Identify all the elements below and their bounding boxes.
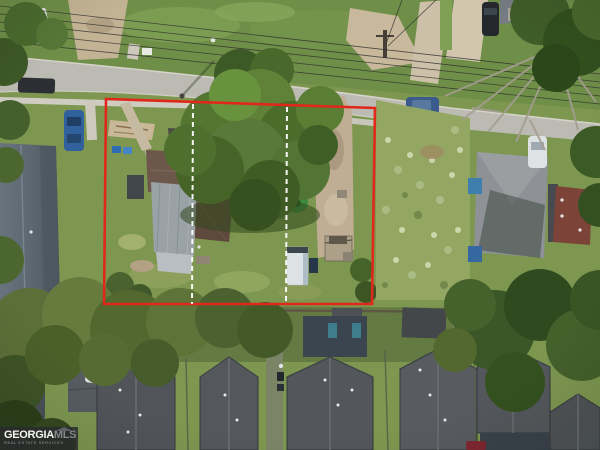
watermark-tagline: REAL ESTATE SERVICES [4,441,75,445]
georgia-mls-watermark: GEORGIAMLS REAL ESTATE SERVICES [0,427,78,450]
aerial-photo: GEORGIAMLS REAL ESTATE SERVICES [0,0,600,450]
photo-vignette [0,0,600,450]
watermark-brand: GEORGIAMLS [4,430,75,440]
watermark-roof-icon [55,427,73,431]
